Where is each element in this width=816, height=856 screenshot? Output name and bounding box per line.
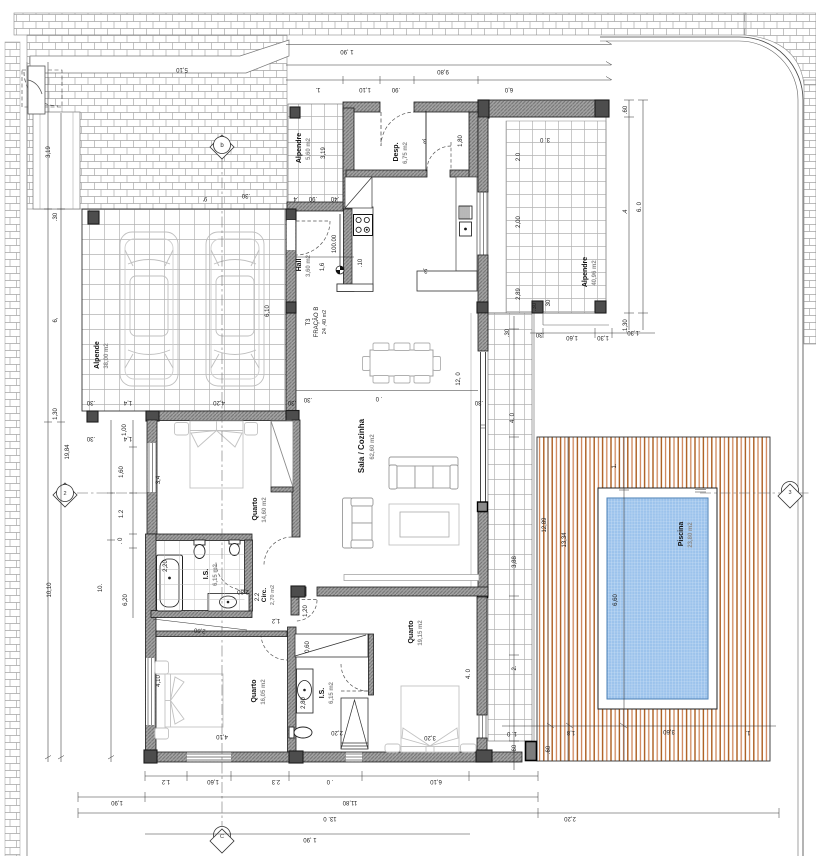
svg-text:4,10: 4,10 [216,733,228,739]
svg-text:3,60 m2: 3,60 m2 [306,254,312,277]
svg-text:10.: 10. [98,583,104,592]
svg-text:2: 2 [63,491,66,497]
svg-text:13,34: 13,34 [562,532,568,548]
svg-text:38,00 m2: 38,00 m2 [104,343,110,369]
svg-text:C: C [220,834,224,840]
svg-text:2.0: 2.0 [516,152,522,161]
svg-text:3. 0: 3. 0 [539,136,550,142]
svg-text:.30: .30 [532,302,538,311]
svg-text:1. 0: 1. 0 [506,730,517,736]
svg-text:6,15 m2: 6,15 m2 [329,681,335,704]
svg-text:4. 0: 4. 0 [510,412,516,423]
svg-text:.30: .30 [474,399,483,405]
svg-text:6,10: 6,10 [265,305,271,317]
svg-text:1,00: 1,00 [122,424,128,436]
svg-text:.30: .30 [241,192,250,198]
svg-text:1.2: 1.2 [161,778,170,784]
svg-text:12, 0: 12, 0 [456,372,462,386]
svg-text:Circ.: Circ. [261,588,268,603]
svg-text:. 0: . 0 [375,395,382,401]
svg-text:1.: 1. [745,729,750,735]
svg-text:10,10: 10,10 [47,582,53,598]
svg-text:.30: .30 [287,399,296,405]
svg-text:16,05 m2: 16,05 m2 [261,679,267,705]
svg-text:11,80: 11,80 [342,799,357,805]
svg-text:23,80 m2: 23,80 m2 [688,522,694,548]
svg-text:2,89: 2,89 [516,288,522,300]
svg-text:Piscina: Piscina [678,522,685,547]
svg-text:Quarto: Quarto [252,498,259,521]
svg-text:30: 30 [546,299,552,306]
svg-text:Sala / Cozinha: Sala / Cozinha [357,418,366,473]
svg-text:2,20: 2,20 [163,560,169,572]
svg-text:40,96 m2: 40,96 m2 [592,260,598,286]
svg-text:1,2: 1,2 [271,617,280,623]
svg-text:1 ,90: 1 ,90 [303,836,317,842]
svg-text:4. 0: 4. 0 [466,668,472,679]
svg-text:.60: .60 [623,105,629,114]
svg-text:.4: .4 [293,195,299,201]
svg-text:Quarto: Quarto [251,680,258,703]
svg-text:6,75 m2: 6,75 m2 [403,141,409,164]
svg-text:.30: .30 [505,328,511,337]
svg-text:FRAÇÃO B: FRAÇÃO B [313,307,320,338]
svg-text:13. 0: 13. 0 [323,815,337,821]
svg-text:1,60: 1,60 [119,466,125,478]
svg-text:2,20: 2,20 [331,729,343,735]
svg-text:3: 3 [788,490,791,496]
svg-text:0,60: 0,60 [305,641,311,653]
svg-text:1,60: 1,60 [207,778,219,784]
svg-text:3,60: 3,60 [663,728,675,734]
svg-text:9,80: 9,80 [437,68,449,74]
svg-text:3.: 3. [421,137,426,143]
svg-text:.10: .10 [358,258,364,267]
svg-text:3,4: 3,4 [156,475,162,484]
svg-text:6,: 6, [53,317,59,322]
svg-text:.30: .30 [53,212,59,221]
svg-text:1,20: 1,20 [303,605,309,617]
svg-text:1,6: 1,6 [320,262,326,271]
svg-text:4,20: 4,20 [213,399,225,405]
svg-text:19,15 m2: 19,15 m2 [418,620,424,646]
svg-text:.30: .30 [303,396,312,402]
svg-text:6,15 m2: 6,15 m2 [213,563,219,586]
svg-text:1,60: 1,60 [566,334,578,340]
svg-text:Hall: Hall [296,259,303,272]
svg-text:62,60 m2: 62,60 m2 [370,434,376,460]
svg-text:Quarto: Quarto [408,621,415,644]
svg-text:1.2: 1.2 [119,509,125,518]
svg-text:1,4: 1,4 [123,399,132,405]
svg-text:2,80: 2,80 [301,697,307,709]
svg-text:2.3: 2.3 [271,778,280,784]
svg-text:6,20: 6,20 [123,594,129,606]
svg-text:Alpende: Alpende [94,341,101,369]
svg-text:100.00: 100.00 [332,234,338,253]
svg-text:. 0: . 0 [118,537,124,544]
svg-text:.60: .60 [546,745,552,754]
svg-text:1 ,90: 1 ,90 [340,48,354,54]
svg-text:2,00: 2,00 [516,216,522,228]
svg-text:6. 0: 6. 0 [637,201,643,212]
svg-text:Alpendre: Alpendre [296,133,303,163]
svg-text:1,30: 1,30 [53,408,59,420]
svg-text:3,19: 3,19 [46,146,52,158]
svg-text:24 ,40 m2: 24 ,40 m2 [322,310,328,334]
svg-text:1.: 1. [612,463,618,468]
svg-text:1.: 1. [315,86,320,92]
svg-text:1,30: 1,30 [597,334,609,340]
svg-text:1,8: 1,8 [566,729,575,735]
svg-text:I.S.: I.S. [203,569,210,580]
svg-text:5,60 m2: 5,60 m2 [306,137,312,160]
svg-text:3,20: 3,20 [424,734,436,740]
svg-text:1,10: 1,10 [359,86,371,92]
svg-text:.30: .30 [86,435,95,441]
svg-text:Desp.: Desp. [393,142,400,161]
svg-text:Alpendre: Alpendre [582,257,589,287]
svg-text:3,: 3, [422,267,427,273]
svg-text:19,84: 19,84 [65,444,71,460]
svg-text:6,10: 6,10 [430,778,442,784]
svg-text:4,10: 4,10 [156,675,162,687]
svg-text:. 0: . 0 [326,778,333,784]
svg-text:I.S.: I.S. [319,688,326,699]
svg-text:14,60 m2: 14,60 m2 [262,497,268,523]
svg-text:.4: .4 [623,209,629,215]
svg-text:2,70 m2: 2,70 m2 [270,585,276,605]
svg-text:.30: .30 [86,399,95,405]
svg-text:12,89: 12,89 [542,517,548,533]
svg-text:T3: T3 [306,318,312,326]
svg-text:6,60: 6,60 [613,594,619,606]
svg-text:3,88: 3,88 [512,556,518,568]
svg-text:2,20: 2,20 [564,815,576,821]
svg-text:.90: .90 [391,86,400,92]
svg-text:.40: .40 [330,195,339,201]
svg-text:.1,30: .1,30 [627,329,641,335]
svg-text:2.2: 2.2 [255,592,261,601]
svg-text:2.: 2. [512,665,518,670]
svg-text:5,10: 5,10 [176,66,188,72]
svg-text:2,80: 2,80 [193,626,206,633]
svg-text:2,80: 2,80 [237,588,249,594]
svg-text:.90: .90 [308,195,317,201]
svg-text:6,0: 6,0 [504,86,513,92]
svg-text:9': 9' [203,195,207,201]
svg-text:3,19: 3,19 [321,147,327,159]
svg-text:1,80: 1,80 [458,135,464,147]
svg-text:1,90: 1,90 [111,799,123,805]
svg-text:.60: .60 [512,744,518,753]
svg-text:1,4: 1,4 [123,435,132,441]
